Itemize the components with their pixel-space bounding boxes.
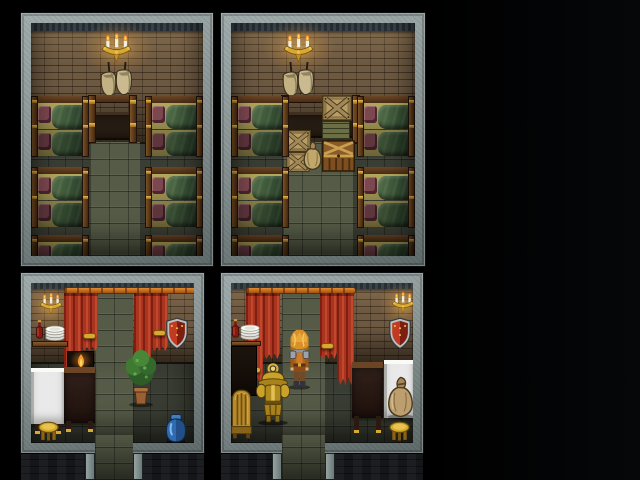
wooden-chair[interactable]	[231, 388, 252, 440]
bed-post	[231, 167, 238, 228]
ambient-dark-right	[425, 0, 640, 480]
pillow	[364, 204, 377, 221]
game-viewport[interactable]: Four-room inn interior — overhead RPG vi…	[0, 0, 640, 480]
bed-post	[145, 96, 152, 157]
bunk-bed[interactable]	[145, 167, 203, 229]
bed-post	[82, 167, 89, 228]
beds-layer	[31, 23, 203, 256]
bed-post	[282, 96, 289, 157]
bunk-upper	[237, 174, 283, 200]
pillow	[364, 245, 377, 256]
blanket	[166, 105, 197, 129]
bunk-bed[interactable]	[357, 167, 415, 229]
grain-sack[interactable]	[386, 374, 413, 420]
blanket	[166, 203, 197, 227]
blanket	[52, 176, 83, 200]
blanket	[166, 176, 197, 200]
blanket	[378, 105, 409, 129]
blanket	[252, 203, 283, 227]
table-leg	[88, 421, 93, 432]
outer-wall-shadow	[143, 453, 204, 480]
room-bunkhouse-left	[21, 13, 213, 266]
wine-bottle-icon[interactable]	[231, 318, 240, 338]
bunk-lower	[151, 201, 197, 227]
bunk-bed[interactable]	[357, 96, 415, 158]
bunk-lower	[363, 130, 409, 156]
bunkhouse-right-interior	[231, 23, 415, 256]
potted-plant[interactable]	[126, 346, 156, 408]
pillow	[238, 245, 251, 256]
pillow	[152, 133, 165, 150]
bunk-lower	[37, 130, 83, 156]
bed-post	[282, 167, 289, 228]
bunk-upper	[37, 103, 83, 129]
bunk-upper	[37, 242, 83, 256]
room-common-right	[221, 273, 423, 453]
common-left-interior	[31, 283, 194, 443]
red-curtain	[81, 293, 98, 351]
bed-post	[408, 167, 415, 228]
table-leg	[66, 421, 71, 432]
dark-wood-table[interactable]	[352, 362, 383, 418]
bunk-upper	[237, 242, 283, 256]
bed-post	[357, 96, 364, 157]
bunk-upper	[151, 174, 197, 200]
bunkhouse-left-interior	[31, 23, 203, 256]
fire-flame-icon	[75, 354, 87, 368]
pillow	[38, 204, 51, 221]
bunk-bed[interactable]	[31, 235, 89, 256]
bunk-lower	[37, 201, 83, 227]
blanket	[378, 176, 409, 200]
curtain-rod	[64, 287, 194, 294]
curtain-rod	[246, 287, 356, 294]
blue-jar-icon[interactable]	[164, 413, 188, 443]
bunk-bed[interactable]	[145, 235, 203, 256]
armor-stand[interactable]	[256, 362, 290, 426]
bed-post	[408, 235, 415, 256]
bunk-bed[interactable]	[357, 235, 415, 256]
pillow	[238, 133, 251, 150]
pillow	[152, 245, 165, 256]
bunk-bed[interactable]	[145, 96, 203, 158]
door-jamb	[325, 453, 335, 480]
red-curtain	[320, 293, 337, 359]
player-character[interactable]	[286, 328, 313, 390]
curtain-tieback	[83, 333, 96, 339]
bed-post	[357, 235, 364, 256]
bunk-bed[interactable]	[31, 167, 89, 229]
outer-wall-shadow	[221, 453, 272, 480]
blanket	[52, 105, 83, 129]
bed-post	[282, 235, 289, 256]
blanket	[252, 132, 283, 156]
bed-post	[145, 167, 152, 228]
door-jamb	[133, 453, 143, 480]
bunk-lower	[237, 201, 283, 227]
blanket	[378, 132, 409, 156]
blanket	[252, 244, 283, 256]
bed-post	[408, 96, 415, 157]
bunk-bed[interactable]	[231, 235, 289, 256]
bed-post	[196, 235, 203, 256]
pillow	[364, 133, 377, 150]
room-common-left	[21, 273, 204, 453]
pillow	[364, 106, 377, 123]
pillow	[364, 177, 377, 194]
heater-shield-icon[interactable]	[388, 317, 412, 350]
bunk-upper	[237, 103, 283, 129]
heater-shield-icon[interactable]	[165, 317, 189, 350]
blanket	[252, 105, 283, 129]
bed-post	[145, 235, 152, 256]
door-jamb	[85, 453, 95, 480]
red-curtain	[263, 293, 280, 359]
wall-shelf	[32, 341, 68, 347]
bunk-bed[interactable]	[231, 167, 289, 229]
curtain-tieback	[321, 343, 334, 349]
south-door-passage-left[interactable]	[95, 435, 133, 480]
pillow	[38, 106, 51, 123]
bed-post	[231, 235, 238, 256]
door-jamb	[272, 453, 282, 480]
blanket	[52, 132, 83, 156]
wine-bottle-icon[interactable]	[35, 319, 44, 339]
bunk-lower	[151, 130, 197, 156]
bed-post	[82, 96, 89, 157]
bed-post	[82, 235, 89, 256]
bunk-bed[interactable]	[31, 96, 89, 158]
bunk-lower	[237, 130, 283, 156]
bed-post	[31, 96, 38, 157]
bunk-upper	[151, 103, 197, 129]
pillow	[152, 106, 165, 123]
blanket	[166, 132, 197, 156]
bunk-upper	[363, 242, 409, 256]
bed-post	[196, 167, 203, 228]
bed-post	[357, 167, 364, 228]
wall-sconce-icon	[38, 292, 64, 316]
pillow	[238, 106, 251, 123]
table-leg	[376, 416, 381, 433]
plate-stack-icon[interactable]	[240, 324, 260, 340]
outer-wall-shadow	[335, 453, 423, 480]
dark-wood-table[interactable]	[64, 367, 95, 423]
plate-stack-icon[interactable]	[45, 325, 65, 341]
bed-post	[31, 235, 38, 256]
bunk-upper	[151, 242, 197, 256]
pillow	[152, 177, 165, 194]
outer-wall-shadow	[21, 453, 85, 480]
south-door-passage-right[interactable]	[282, 435, 325, 480]
white-cloth-table[interactable]	[31, 368, 64, 424]
blanket	[378, 203, 409, 227]
pillow	[238, 177, 251, 194]
pillow	[38, 133, 51, 150]
pillow	[152, 204, 165, 221]
bunk-upper	[363, 174, 409, 200]
pillow	[38, 245, 51, 256]
blanket	[166, 244, 197, 256]
bed-post	[31, 167, 38, 228]
gold-stool-icon[interactable]	[389, 421, 410, 442]
table-leg	[354, 416, 359, 433]
bunk-lower	[363, 201, 409, 227]
blanket	[52, 244, 83, 256]
bed-post	[196, 96, 203, 157]
bunk-upper	[363, 103, 409, 129]
wall-sconce-icon	[390, 291, 413, 315]
bed-post	[231, 96, 238, 157]
blanket	[52, 203, 83, 227]
common-right-interior	[231, 283, 413, 443]
gold-stool-icon[interactable]	[38, 421, 59, 442]
blanket	[252, 176, 283, 200]
beds-layer	[231, 23, 415, 256]
bunk-upper	[37, 174, 83, 200]
blanket	[378, 244, 409, 256]
pillow	[238, 204, 251, 221]
room-bunkhouse-right	[221, 13, 425, 266]
fireplace[interactable]	[67, 351, 94, 368]
pillow	[38, 177, 51, 194]
bunk-bed[interactable]	[231, 96, 289, 158]
